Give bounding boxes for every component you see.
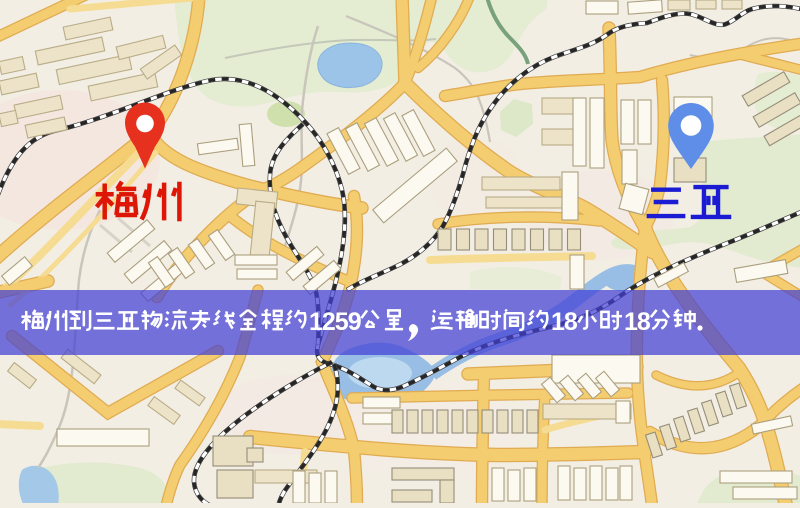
svg-text:1259: 1259 [309, 308, 361, 336]
svg-text:18: 18 [624, 308, 651, 336]
svg-text:18: 18 [551, 308, 578, 336]
